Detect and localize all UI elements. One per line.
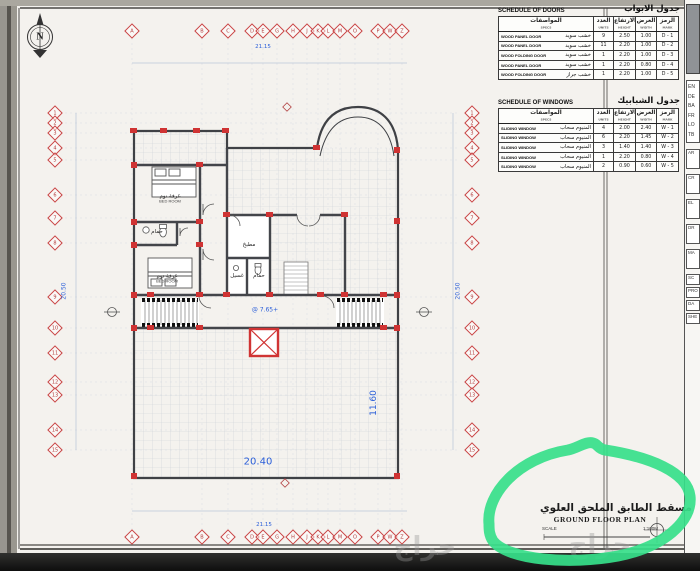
qty-cell: 2 — [594, 162, 614, 172]
doors-schedule: SCHEDULE OF DOORS جدول الابواب المواصفات… — [498, 4, 680, 80]
height-cell: 0.90 — [614, 162, 636, 172]
schedule-header-cell: المواصفاتSPECS — [499, 109, 594, 124]
schedule-header-cell: العددUNITS — [594, 17, 614, 32]
mark-cell: W - 2 — [657, 133, 679, 143]
width-cell: 0.80 — [636, 60, 657, 70]
doors-schedule-titles: SCHEDULE OF DOORS جدول الابواب — [498, 4, 680, 14]
bed-bedroom1 — [152, 167, 196, 197]
room-label: حمام — [253, 273, 265, 279]
strip-row: SC — [686, 274, 700, 285]
schedule-header-cell: الرمزMARK — [657, 109, 679, 124]
qty-cell: 1 — [594, 60, 614, 70]
drawing-title-arabic: مسقط الطابق الملحق العلوي — [540, 502, 660, 514]
doors-schedule-table: المواصفاتSPECS العددUNITS الارتفاعHEIGHT… — [498, 16, 679, 80]
qty-cell: 1 — [594, 70, 614, 80]
schedule-header-cell: العددUNITS — [594, 109, 614, 124]
strip-row: SHE — [686, 313, 700, 324]
mark-cell: W - 4 — [657, 152, 679, 162]
strip-box: MA — [686, 249, 700, 269]
stairs-right — [336, 299, 384, 326]
schedule-header-cell: العرضWIDTH — [636, 17, 657, 32]
mark-cell: D - 5 — [657, 70, 679, 80]
windows-schedule-title-ar: جدول الشبابيك — [617, 96, 680, 106]
drawing-title-english: GROUND FLOOR PLAN — [540, 515, 660, 524]
room-label: مطبخ — [243, 242, 256, 248]
mark-cell: W - 1 — [657, 124, 679, 134]
watermark-text: حراج — [569, 530, 632, 560]
qty-cell: 1 — [594, 51, 614, 61]
watermark-text: حراج — [394, 532, 457, 562]
room-label: حمام — [151, 229, 163, 235]
photographed-floor-plan-sheet: ABCDEGHJKLMOPWZ ABCDEGHJKLMOPWZ 12345678… — [0, 0, 700, 571]
total-dim-left: 20.50 — [61, 282, 68, 299]
spec-cell: WOOD PANEL DOORخشب سويد — [499, 32, 594, 42]
doors-schedule-title-ar: جدول الابواب — [624, 4, 680, 14]
height-cell: 2.20 — [614, 41, 636, 51]
schedule-header-cell: الارتفاعHEIGHT — [614, 17, 636, 32]
room-label: غرفة نومBED ROOM — [156, 274, 178, 285]
mark-cell: D - 2 — [657, 41, 679, 51]
terrace-width-dim: 20.40 — [244, 457, 273, 468]
width-cell: 0.80 — [636, 152, 657, 162]
strip-text-line: FR — [687, 112, 699, 122]
qty-cell: 1 — [594, 152, 614, 162]
scale-label: SCALE — [542, 526, 557, 531]
table-row: WOOD FOLDING DOORخشب سويد 1 2.20 1.00 D … — [499, 51, 679, 61]
spec-cell: WOOD FOLDING DOORخشب جراز — [499, 70, 594, 80]
drawing-title-block: مسقط الطابق الملحق العلوي GROUND FLOOR P… — [540, 502, 660, 531]
strip-text-line: TB — [687, 131, 699, 141]
qty-cell: 11 — [594, 41, 614, 51]
strip-box: AR — [686, 149, 700, 169]
spec-cell: SLIDING WINDOWالمنيوم سحاب — [499, 133, 594, 143]
width-cell: 2.40 — [636, 124, 657, 134]
strip-text-line: DE — [687, 93, 699, 103]
qty-cell: 9 — [594, 32, 614, 42]
height-cell: 2.20 — [614, 133, 636, 143]
mark-cell: D - 3 — [657, 51, 679, 61]
spec-cell: SLIDING WINDOWالمنيوم سحاب — [499, 143, 594, 153]
strip-box: DR — [686, 224, 700, 244]
table-row: SLIDING WINDOWالمنيوم سحاب 2 0.90 0.60 W… — [499, 162, 679, 172]
width-cell: 1.00 — [636, 70, 657, 80]
height-cell: 2.20 — [614, 152, 636, 162]
height-cell: 2.50 — [614, 32, 636, 42]
qty-cell: 6 — [594, 133, 614, 143]
height-cell: 2.00 — [614, 124, 636, 134]
windows-schedule-title-en: SCHEDULE OF WINDOWS — [498, 100, 573, 106]
schedule-header-cell: الارتفاعHEIGHT — [614, 109, 636, 124]
spec-cell: WOOD PANEL DOORخشب سويد — [499, 41, 594, 51]
stairs-middle — [284, 262, 308, 295]
width-cell: 0.60 — [636, 162, 657, 172]
spec-cell: SLIDING WINDOWالمنيوم سحاب — [499, 152, 594, 162]
north-label: N — [36, 32, 43, 43]
floor-plan-drawing — [0, 0, 700, 571]
height-cell: 1.40 — [614, 143, 636, 153]
table-row: WOOD FOLDING DOORخشب جراز 1 2.20 1.00 D … — [499, 70, 679, 80]
spec-cell: WOOD FOLDING DOORخشب سويد — [499, 51, 594, 61]
windows-schedule-table: المواصفاتSPECS العددUNITS الارتفاعHEIGHT… — [498, 108, 679, 172]
width-cell: 1.00 — [636, 32, 657, 42]
terrace-height-dim: 11.60 — [369, 390, 379, 416]
stairs-left — [141, 299, 199, 326]
table-row: WOOD PANEL DOORخشب سويد 9 2.50 1.00 D - … — [499, 32, 679, 42]
schedule-header-cell: العرضWIDTH — [636, 109, 657, 124]
table-row: SLIDING WINDOWالمنيوم سحاب 1 2.20 0.80 W… — [499, 152, 679, 162]
strip-bottom-rows: SCPRODASHE — [686, 274, 700, 324]
spec-cell: WOOD PANEL DOORخشب سويد — [499, 60, 594, 70]
table-row: SLIDING WINDOWالمنيوم سحاب 4 2.00 2.40 W… — [499, 124, 679, 134]
floor-level-label: @ 7.65+ — [252, 307, 278, 314]
doors-schedule-title-en: SCHEDULE OF DOORS — [498, 8, 565, 14]
strip-row: DA — [686, 300, 700, 311]
qty-cell: 4 — [594, 124, 614, 134]
table-row: SLIDING WINDOWالمنيوم سحاب 6 2.20 1.45 W… — [499, 133, 679, 143]
spec-cell: SLIDING WINDOWالمنيوم سحاب — [499, 162, 594, 172]
strip-text-line: EN — [687, 83, 699, 93]
width-cell: 1.00 — [636, 41, 657, 51]
qty-cell: 3 — [594, 143, 614, 153]
room-label: غرفة نومBED ROOM — [159, 194, 181, 205]
width-cell: 1.00 — [636, 51, 657, 61]
width-cell: 1.45 — [636, 133, 657, 143]
shaft-box — [250, 329, 278, 356]
windows-schedule-titles: SCHEDULE OF WINDOWS جدول الشبابيك — [498, 96, 680, 106]
schedule-header-cell: الرمزMARK — [657, 17, 679, 32]
windows-schedule: SCHEDULE OF WINDOWS جدول الشبابيك المواص… — [498, 96, 680, 172]
total-dim-bottom: 21.15 — [256, 522, 272, 528]
table-row: WOOD PANEL DOORخشب سويد 11 2.20 1.00 D -… — [499, 41, 679, 51]
scale-value: 1:100M — [643, 526, 658, 531]
table-row: SLIDING WINDOWالمنيوم سحاب 3 1.40 1.40 W… — [499, 143, 679, 153]
strip-info-box: ENDEBAFRLOTB — [686, 80, 700, 143]
strip-mid-boxes: ARCRELDRMA — [686, 149, 700, 269]
total-dim-top: 21.15 — [255, 44, 271, 50]
height-cell: 2.20 — [614, 60, 636, 70]
strip-box: CR — [686, 174, 700, 194]
width-cell: 1.40 — [636, 143, 657, 153]
right-title-strip: ENDEBAFRLOTB ARCRELDRMA SCPRODASHE — [684, 0, 700, 553]
schedule-header-cell: المواصفاتSPECS — [499, 17, 594, 32]
mark-cell: D - 1 — [657, 32, 679, 42]
strip-text-line: LO — [687, 121, 699, 131]
spec-cell: SLIDING WINDOWالمنيوم سحاب — [499, 124, 594, 134]
height-cell: 2.20 — [614, 70, 636, 80]
total-dim-right: 20.50 — [455, 282, 462, 299]
strip-box: EL — [686, 199, 700, 219]
strip-text-line: BA — [687, 102, 699, 112]
mark-cell: D - 4 — [657, 60, 679, 70]
mark-cell: W - 5 — [657, 162, 679, 172]
strip-row: PRO — [686, 287, 700, 298]
mark-cell: W - 3 — [657, 143, 679, 153]
strip-dark-box — [686, 4, 700, 74]
table-row: WOOD PANEL DOORخشب سويد 1 2.20 0.80 D - … — [499, 60, 679, 70]
height-cell: 2.20 — [614, 51, 636, 61]
room-label: غسيل — [230, 273, 244, 279]
